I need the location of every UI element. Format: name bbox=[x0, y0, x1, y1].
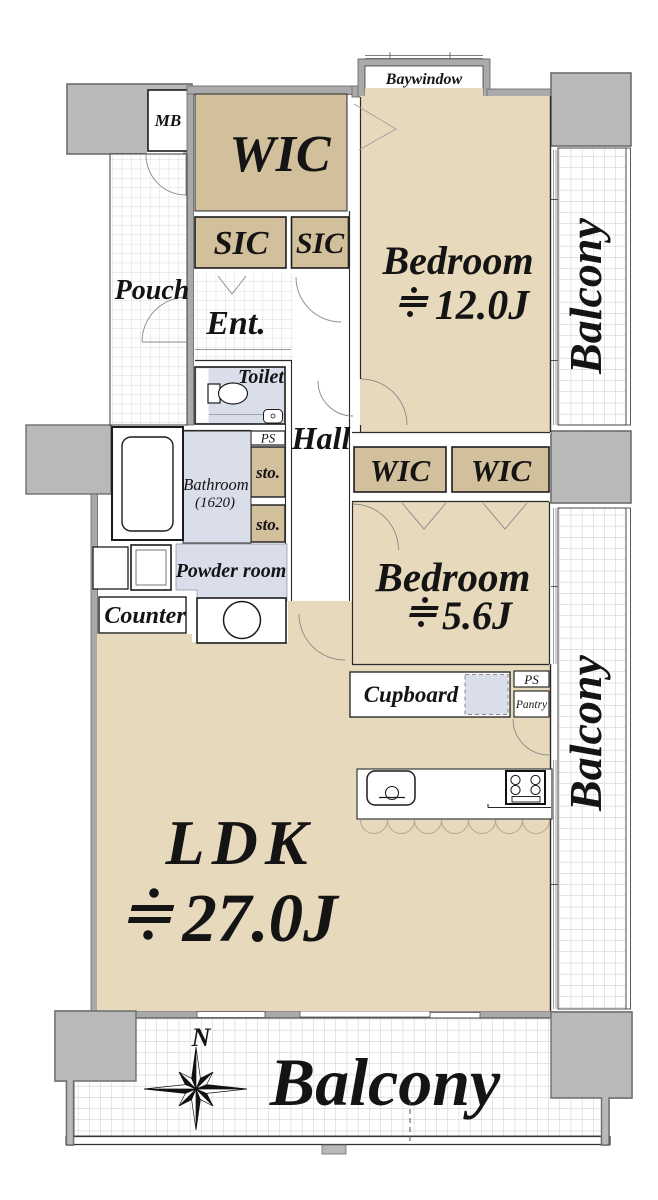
svg-text:sto.: sto. bbox=[255, 515, 280, 534]
svg-text:12.0J: 12.0J bbox=[435, 283, 532, 329]
svg-text:sto.: sto. bbox=[255, 463, 280, 482]
svg-text:Pantry: Pantry bbox=[515, 699, 548, 711]
svg-text:LDK: LDK bbox=[165, 807, 315, 878]
svg-text:PS: PS bbox=[523, 672, 539, 687]
svg-text:Ent.: Ent. bbox=[205, 305, 266, 342]
svg-text:(1620): (1620) bbox=[195, 495, 235, 511]
svg-text:SIC: SIC bbox=[214, 225, 269, 262]
svg-text:Baywindow: Baywindow bbox=[385, 71, 463, 88]
svg-text:Balcony: Balcony bbox=[269, 1044, 501, 1120]
svg-text:WIC: WIC bbox=[229, 126, 331, 183]
svg-text:Bedroom: Bedroom bbox=[381, 238, 533, 283]
svg-text:MB: MB bbox=[154, 111, 181, 130]
svg-text:PS: PS bbox=[260, 431, 276, 446]
svg-text:5.6J: 5.6J bbox=[442, 593, 514, 638]
svg-text:27.0J: 27.0J bbox=[181, 880, 340, 956]
svg-text:Hall: Hall bbox=[291, 420, 351, 456]
svg-text:Balcony: Balcony bbox=[560, 654, 611, 811]
svg-text:WIC: WIC bbox=[471, 453, 532, 488]
svg-text:Bathroom: Bathroom bbox=[183, 475, 248, 494]
svg-text:N: N bbox=[191, 1023, 212, 1052]
svg-text:Counter: Counter bbox=[104, 603, 186, 629]
svg-text:Balcony: Balcony bbox=[560, 217, 611, 374]
svg-text:Pouch: Pouch bbox=[114, 275, 190, 306]
svg-text:Toilet: Toilet bbox=[238, 366, 285, 388]
svg-text:Powder room: Powder room bbox=[175, 560, 287, 582]
svg-text:SIC: SIC bbox=[296, 227, 345, 260]
svg-text:WIC: WIC bbox=[370, 453, 431, 488]
svg-text:Cupboard: Cupboard bbox=[364, 682, 459, 707]
